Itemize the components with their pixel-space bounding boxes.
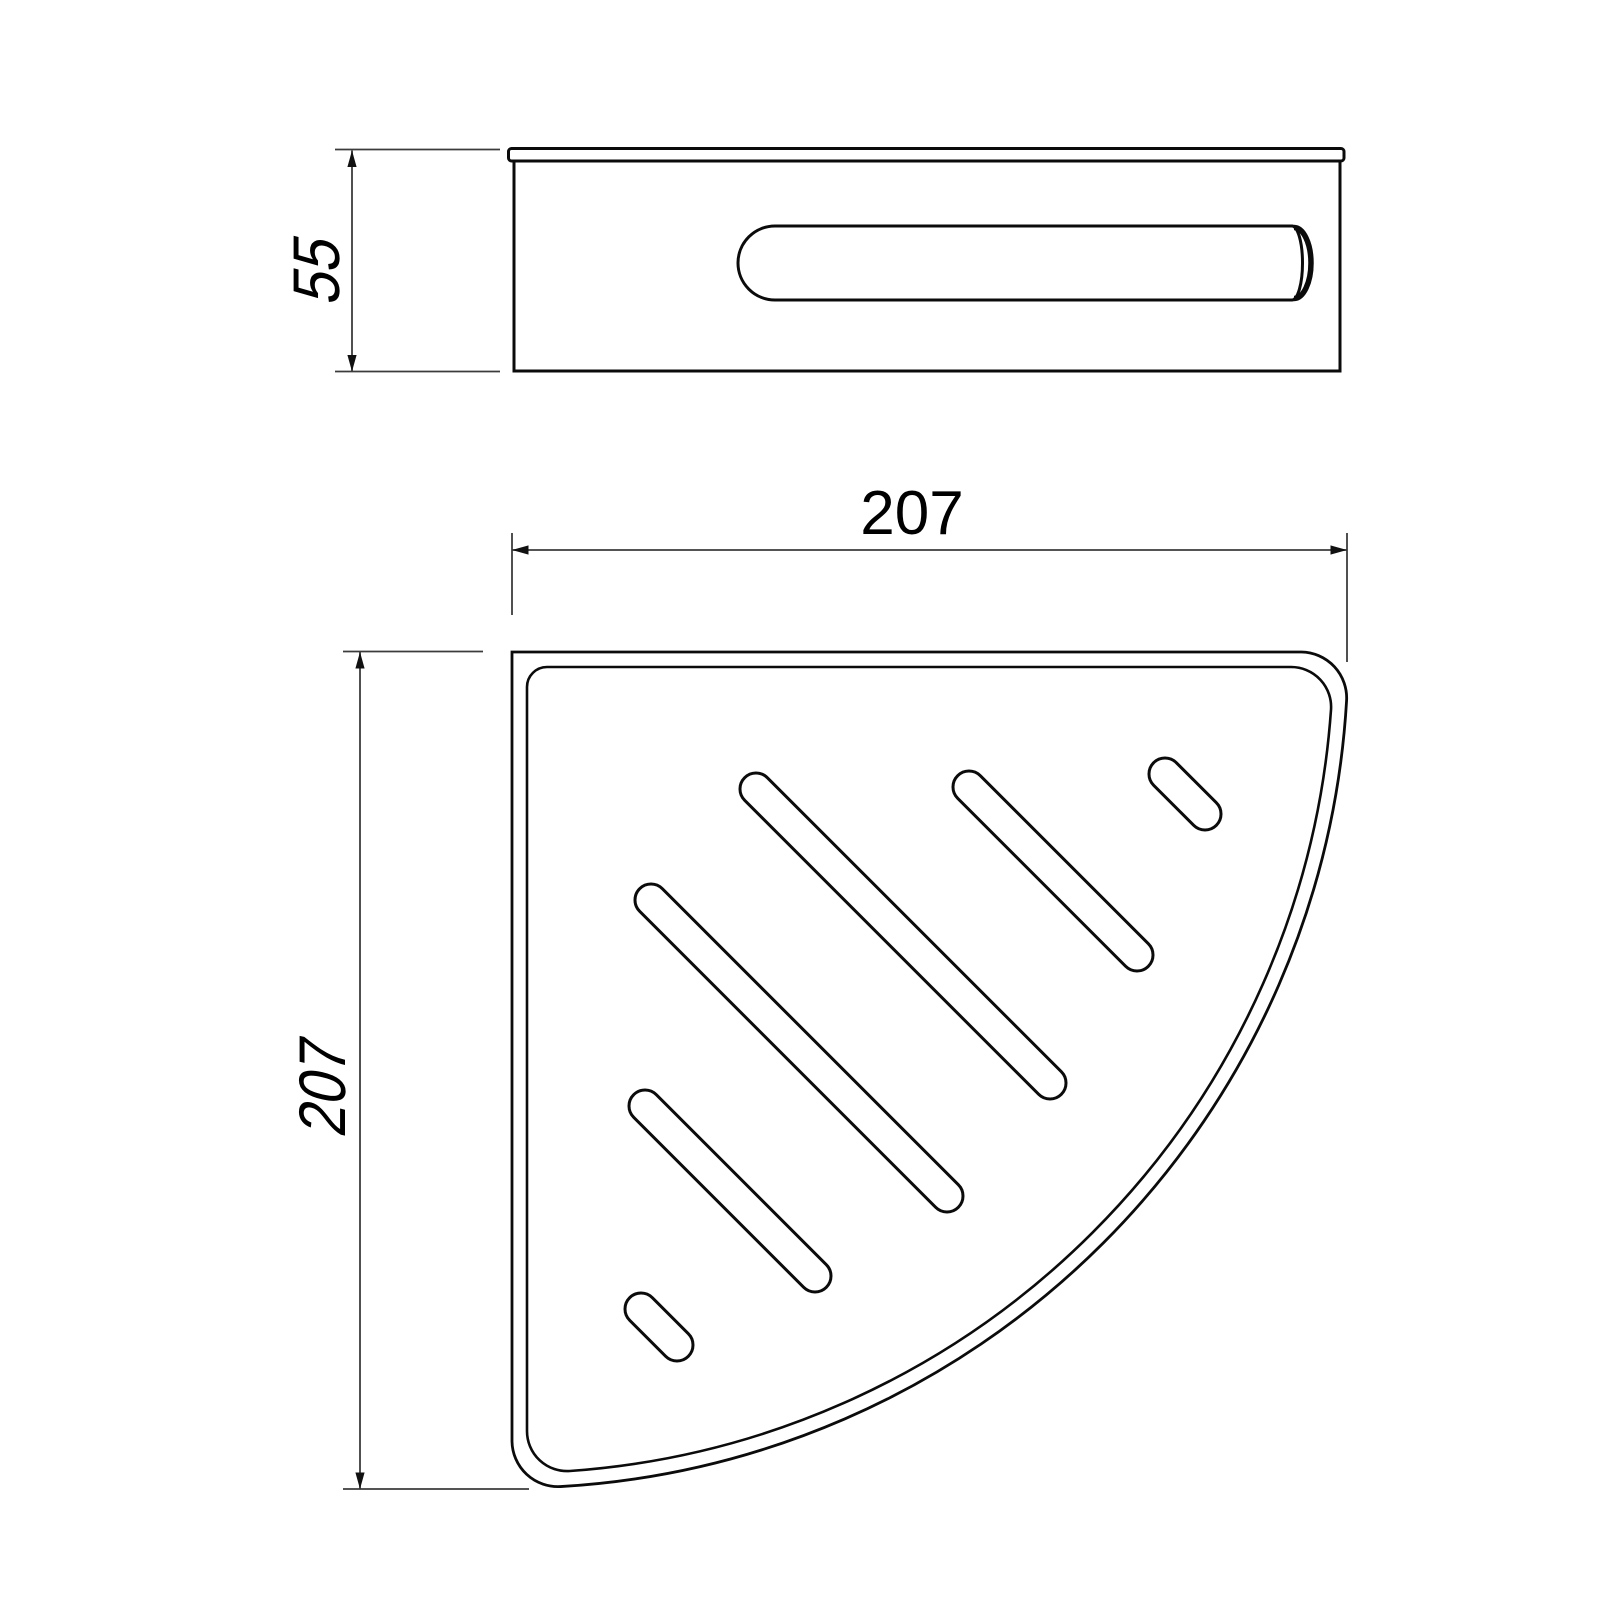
svg-text:207: 207	[860, 479, 963, 548]
svg-text:207: 207	[286, 1030, 360, 1142]
